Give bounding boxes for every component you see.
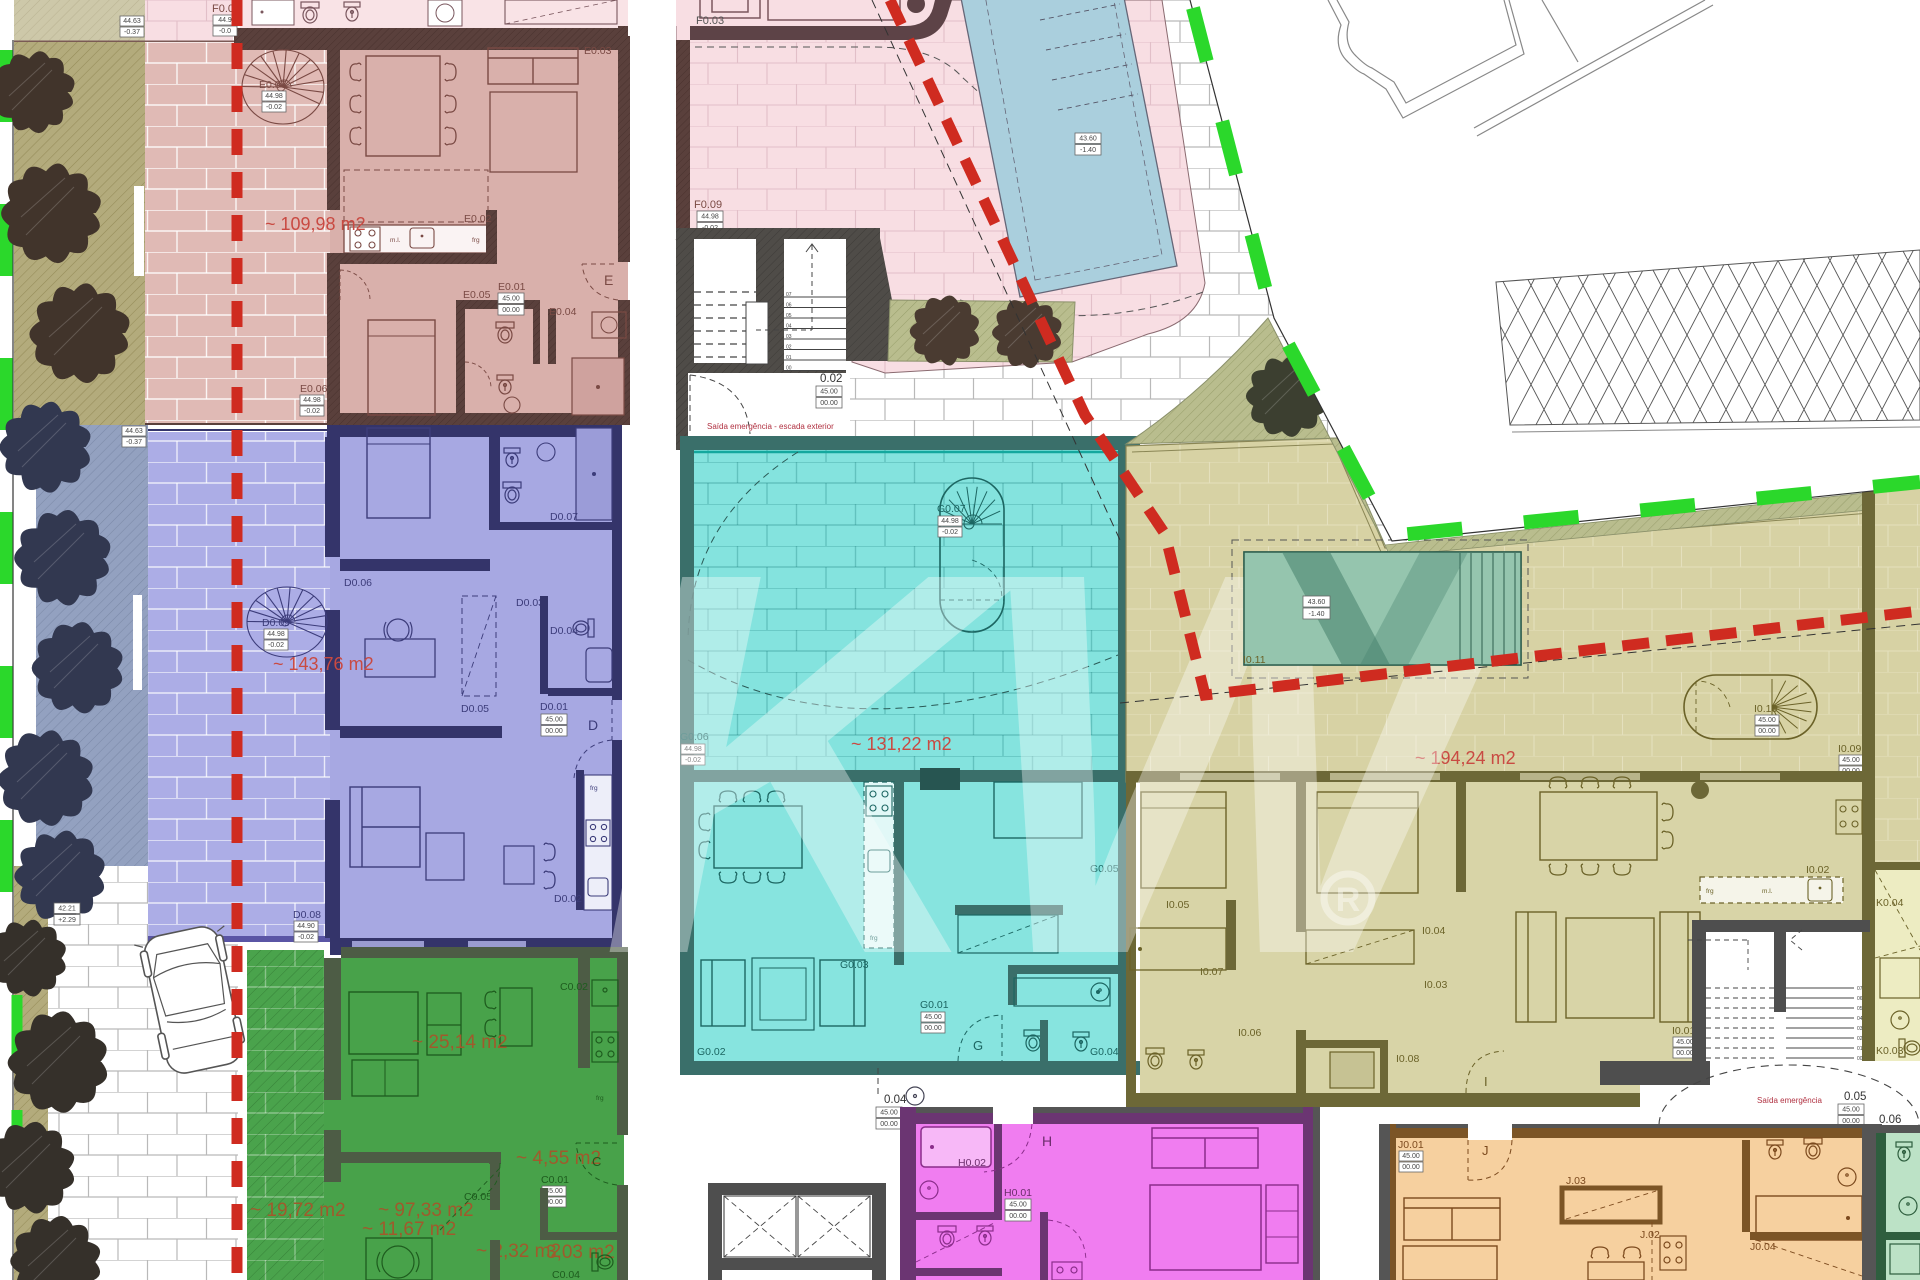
svg-text:~ 109,98 m2: ~ 109,98 m2 xyxy=(265,214,366,234)
svg-text:00.00: 00.00 xyxy=(820,400,838,407)
svg-text:-0.37: -0.37 xyxy=(126,439,142,446)
svg-text:I0.11: I0.11 xyxy=(1243,654,1266,666)
svg-text:K0.04: K0.04 xyxy=(1876,897,1904,909)
svg-text:R: R xyxy=(1336,881,1361,919)
svg-text:0.05: 0.05 xyxy=(1844,1091,1866,1103)
svg-text:44.98: 44.98 xyxy=(265,93,283,100)
svg-text:0.04: 0.04 xyxy=(884,1094,907,1106)
svg-text:~ 19,72 m2: ~ 19,72 m2 xyxy=(250,1200,346,1221)
svg-text:44.98: 44.98 xyxy=(701,214,719,221)
svg-text:C0.02: C0.02 xyxy=(560,981,588,993)
svg-text:+2.29: +2.29 xyxy=(58,917,76,924)
svg-text:0.06: 0.06 xyxy=(1879,1114,1901,1126)
svg-text:m.l.: m.l. xyxy=(390,237,401,244)
svg-text:Saída emergência - escada exte: Saída emergência - escada exterior xyxy=(707,422,834,431)
svg-text:F0.03: F0.03 xyxy=(696,15,724,27)
svg-text:~ 11,67 m2: ~ 11,67 m2 xyxy=(362,1219,456,1240)
svg-text:01: 01 xyxy=(786,355,792,361)
svg-text:D0.08: D0.08 xyxy=(293,909,321,921)
svg-text:H0.01: H0.01 xyxy=(1004,1187,1032,1199)
svg-text:45.00: 45.00 xyxy=(545,717,563,724)
svg-text:D0.03: D0.03 xyxy=(516,597,544,609)
svg-text:D0.09: D0.09 xyxy=(262,617,290,629)
svg-text:C: C xyxy=(592,1154,601,1169)
svg-text:42.21: 42.21 xyxy=(58,906,76,913)
svg-text:43.60: 43.60 xyxy=(1308,599,1326,606)
svg-text:44.9: 44.9 xyxy=(218,17,232,24)
svg-text:00.00: 00.00 xyxy=(1009,1213,1027,1220)
svg-text:J.03: J.03 xyxy=(1566,1175,1586,1187)
svg-text:45.00: 45.00 xyxy=(1402,1153,1420,1160)
svg-text:00.00: 00.00 xyxy=(545,728,563,735)
svg-text:44.98: 44.98 xyxy=(267,631,285,638)
svg-text:frg: frg xyxy=(1706,888,1714,895)
svg-text:45.00: 45.00 xyxy=(502,296,520,303)
svg-text:I0.02: I0.02 xyxy=(1806,864,1830,876)
svg-text:02: 02 xyxy=(786,345,792,351)
svg-text:05: 05 xyxy=(1857,1006,1863,1012)
svg-text:K0.03: K0.03 xyxy=(1876,1045,1904,1057)
svg-text:D: D xyxy=(588,717,598,733)
svg-text:-0.02: -0.02 xyxy=(268,642,284,649)
svg-text:07: 07 xyxy=(1857,986,1863,992)
svg-text:E0.01: E0.01 xyxy=(498,281,526,293)
svg-text:04: 04 xyxy=(1857,1016,1863,1022)
svg-text:00.00: 00.00 xyxy=(1676,1050,1694,1057)
svg-text:E0.03: E0.03 xyxy=(584,45,612,57)
svg-text:~ 4,55 m2: ~ 4,55 m2 xyxy=(516,1148,601,1169)
svg-text:07: 07 xyxy=(786,292,792,298)
svg-text:0.02: 0.02 xyxy=(820,373,842,385)
svg-text:E0.07: E0.07 xyxy=(259,79,287,91)
svg-text:00.00: 00.00 xyxy=(1842,1118,1860,1125)
svg-text:43.60: 43.60 xyxy=(1079,136,1097,143)
svg-text:D0.01: D0.01 xyxy=(540,701,568,713)
svg-text:I0.09: I0.09 xyxy=(1838,743,1862,755)
svg-text:-0.02: -0.02 xyxy=(298,934,314,941)
svg-text:00.00: 00.00 xyxy=(1758,728,1776,735)
svg-text:06: 06 xyxy=(1857,996,1863,1002)
svg-text:01: 01 xyxy=(1857,1046,1863,1052)
svg-text:frg: frg xyxy=(596,1095,604,1102)
svg-text:D0.02: D0.02 xyxy=(554,893,582,905)
svg-text:J0.01: J0.01 xyxy=(1398,1139,1424,1151)
svg-text:-0.0: -0.0 xyxy=(219,28,231,35)
svg-text:J: J xyxy=(1482,1143,1489,1158)
svg-text:45.00: 45.00 xyxy=(1676,1039,1694,1046)
svg-text:H: H xyxy=(1042,1133,1052,1149)
svg-text:Saída emergência: Saída emergência xyxy=(1757,1096,1822,1105)
svg-text:45.00: 45.00 xyxy=(880,1110,898,1117)
svg-text:D0.05: D0.05 xyxy=(461,703,489,715)
svg-text:45.00: 45.00 xyxy=(1842,757,1860,764)
svg-text:45.00: 45.00 xyxy=(820,389,838,396)
svg-text:H0.02: H0.02 xyxy=(958,1157,986,1169)
svg-text:45.00: 45.00 xyxy=(1842,1107,1860,1114)
svg-text:-0.37: -0.37 xyxy=(124,29,140,36)
svg-text:00: 00 xyxy=(786,366,792,372)
svg-text:44.63: 44.63 xyxy=(125,428,143,435)
svg-text:03: 03 xyxy=(786,334,792,340)
svg-text:KW: KW xyxy=(600,460,1523,1068)
svg-text:04: 04 xyxy=(786,324,792,330)
svg-text:m.l.: m.l. xyxy=(1762,888,1773,895)
svg-text:D0.04: D0.04 xyxy=(550,625,578,637)
svg-text:44.90: 44.90 xyxy=(297,923,315,930)
svg-text:J.02: J.02 xyxy=(1640,1229,1660,1241)
svg-text:I0.01: I0.01 xyxy=(1672,1025,1696,1037)
svg-text:E0.02: E0.02 xyxy=(464,213,492,225)
svg-text:frg: frg xyxy=(472,237,480,244)
svg-text:D0.07: D0.07 xyxy=(550,511,578,523)
svg-text:02: 02 xyxy=(1857,1036,1863,1042)
svg-text:45.00: 45.00 xyxy=(1758,717,1776,724)
svg-text:03: 03 xyxy=(1857,1026,1863,1032)
svg-text:I0.10: I0.10 xyxy=(1754,703,1778,715)
svg-text:44.63: 44.63 xyxy=(123,18,141,25)
svg-text:3,03 m2: 3,03 m2 xyxy=(546,1242,615,1263)
svg-text:C0.01: C0.01 xyxy=(541,1174,569,1186)
svg-text:I: I xyxy=(1484,1074,1488,1089)
svg-text:E0.05: E0.05 xyxy=(463,289,491,301)
svg-text:45.00: 45.00 xyxy=(1009,1202,1027,1209)
svg-text:F0.09: F0.09 xyxy=(694,199,722,211)
svg-text:J0.04: J0.04 xyxy=(1750,1241,1776,1253)
svg-text:-0.02: -0.02 xyxy=(304,408,320,415)
svg-text:05: 05 xyxy=(786,313,792,319)
svg-text:00.00: 00.00 xyxy=(502,307,520,314)
svg-text:06: 06 xyxy=(786,303,792,309)
svg-text:00.00: 00.00 xyxy=(880,1121,898,1128)
svg-text:~ 143,76 m2: ~ 143,76 m2 xyxy=(273,654,374,674)
svg-text:44.98: 44.98 xyxy=(303,397,321,404)
svg-text:E: E xyxy=(604,272,613,288)
svg-text:E0.06: E0.06 xyxy=(300,383,328,395)
svg-text:D0.06: D0.06 xyxy=(344,577,372,589)
svg-text:E0.04: E0.04 xyxy=(549,306,577,318)
svg-text:00.00: 00.00 xyxy=(1402,1164,1420,1171)
svg-text:C0.04: C0.04 xyxy=(552,1269,580,1280)
svg-text:-0.02: -0.02 xyxy=(266,104,282,111)
svg-text:-1.40: -1.40 xyxy=(1080,147,1096,154)
svg-text:-1.40: -1.40 xyxy=(1309,611,1325,618)
svg-text:frg: frg xyxy=(590,785,598,792)
svg-text:~ 25,14 m2: ~ 25,14 m2 xyxy=(412,1032,508,1053)
